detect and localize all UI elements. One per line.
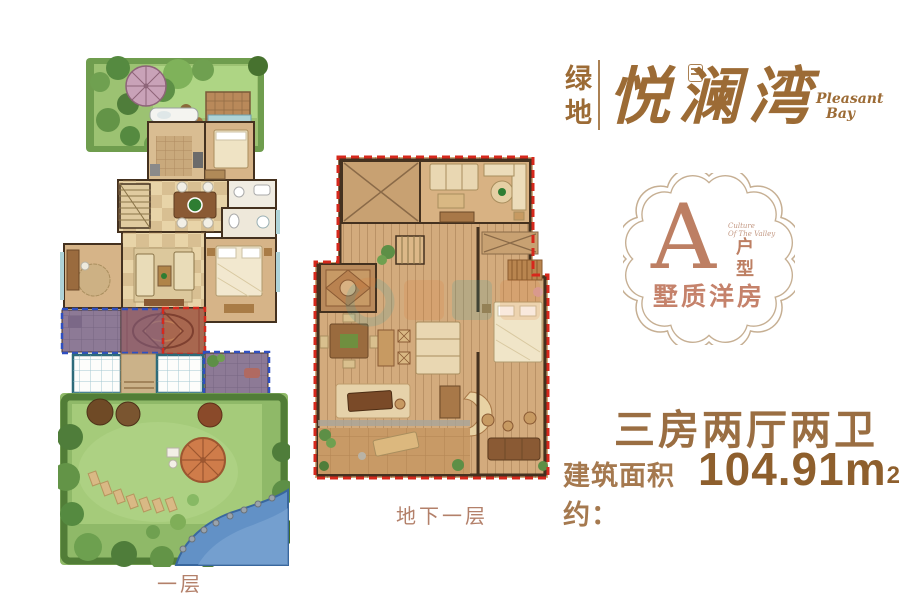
kitchen [148,122,205,180]
bath-right [222,208,280,238]
unit-type-badge: A Culture Of The Valley 户型 墅质洋房 [623,173,795,345]
bedroom-right [205,238,280,322]
watermark [338,266,558,338]
area-superscript: 2 [887,462,900,490]
area-value: 104.91m [698,442,887,496]
unit-type-label: 户型 [731,237,757,281]
plant [377,255,387,265]
stairs-basement [396,236,424,264]
threshold [318,420,470,426]
living-room [134,248,194,306]
skylight-left [73,355,121,393]
terrace-purple-left [62,310,121,352]
skylight-right [157,355,203,393]
first-floor-label: 一层 [140,568,220,597]
brand-logo: 绿地 悦澜湾 Pleasant Bay [552,52,892,147]
stairs [120,184,150,228]
bath-top [228,180,276,210]
area-label: 建筑面积约： [563,454,698,532]
storage-room [342,161,420,223]
patio-basement [318,428,470,474]
parasol-icon [126,66,166,106]
brand-en-line1: Pleasant [816,92,883,107]
brand-name-main: 悦澜湾 [608,46,818,136]
area-spec: 建筑面积约： 104.91m 2 [563,442,900,532]
hall-cabinet [440,212,474,222]
brand-en-line2: Bay [816,107,883,122]
badge-subtitle: 墅质洋房 [623,277,795,313]
basement-label: 地下一层 [396,500,488,529]
brand-seal-icon [688,64,703,82]
study-room [60,244,122,308]
poster-canvas: 绿地 悦澜湾 Pleasant Bay A Culture Of The Val… [0,0,900,600]
first-floor-plan [58,52,290,567]
brand-divider [598,60,600,130]
unit-type-letter: A [651,193,716,283]
badge-tagline-line1: Culture [728,222,775,230]
brand-name-cn: 绿地 [556,64,595,132]
bedroom-top [205,115,254,180]
brand-name-en: Pleasant Bay [816,92,883,121]
terrace-purple-right [204,352,269,398]
porch [121,354,157,398]
garden-bottom [58,393,290,567]
tv-cabinet [440,386,460,418]
piano-area [336,384,410,418]
lounge-room [420,161,530,223]
